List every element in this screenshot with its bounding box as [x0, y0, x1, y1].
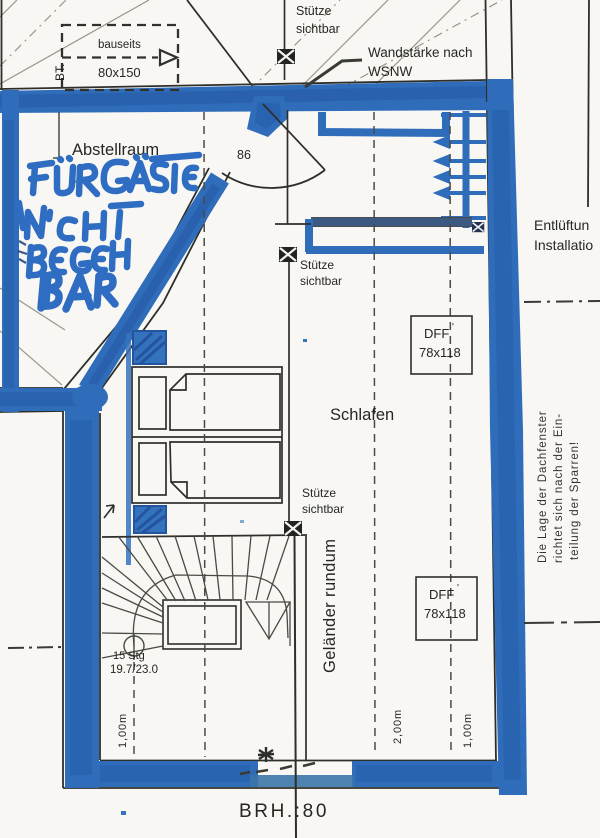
svg-text:Stütze: Stütze [300, 258, 334, 272]
svg-text:86: 86 [237, 148, 251, 162]
svg-text:richtet sich nach der Ein-: richtet sich nach der Ein- [553, 413, 565, 563]
svg-text:Die Lage der Dachfenster: Die Lage der Dachfenster [537, 410, 549, 563]
svg-text:1,00m: 1,00m [462, 713, 474, 748]
svg-text:15 Stg: 15 Stg [113, 650, 145, 662]
svg-text:19.7/23.0: 19.7/23.0 [110, 664, 158, 676]
svg-text:BT.: BT. [53, 64, 67, 81]
svg-text:Stütze: Stütze [296, 4, 331, 18]
svg-text:': ' [457, 583, 459, 594]
svg-text:Geländer rundum: Geländer rundum [321, 539, 339, 673]
svg-text:sichtbar: sichtbar [302, 502, 344, 516]
svg-text:78x118: 78x118 [424, 606, 466, 621]
svg-text:Stütze: Stütze [302, 486, 336, 500]
svg-text:1,00m: 1,00m [117, 713, 129, 748]
svg-text:Wandstärke nach: Wandstärke nach [368, 45, 473, 60]
svg-text:80x150: 80x150 [98, 65, 141, 80]
svg-text:DFF: DFF [424, 326, 449, 341]
svg-text:sichtbar: sichtbar [296, 22, 340, 36]
svg-text:WSNW: WSNW [368, 64, 412, 79]
svg-text:sichtbar: sichtbar [300, 274, 342, 288]
svg-text:bauseits: bauseits [98, 39, 141, 51]
svg-text:': ' [452, 322, 454, 333]
svg-text:DFF: DFF [429, 587, 454, 602]
svg-text:2,00m: 2,00m [392, 709, 404, 744]
svg-text:BRH.:80: BRH.:80 [239, 801, 329, 822]
svg-text:Entlüftun: Entlüftun [534, 217, 589, 233]
svg-text:Installatio: Installatio [534, 237, 593, 253]
svg-text:Schlafen: Schlafen [330, 406, 394, 424]
svg-text:teilung der Sparren!: teilung der Sparren! [569, 441, 581, 560]
svg-text:78x118: 78x118 [419, 345, 461, 360]
